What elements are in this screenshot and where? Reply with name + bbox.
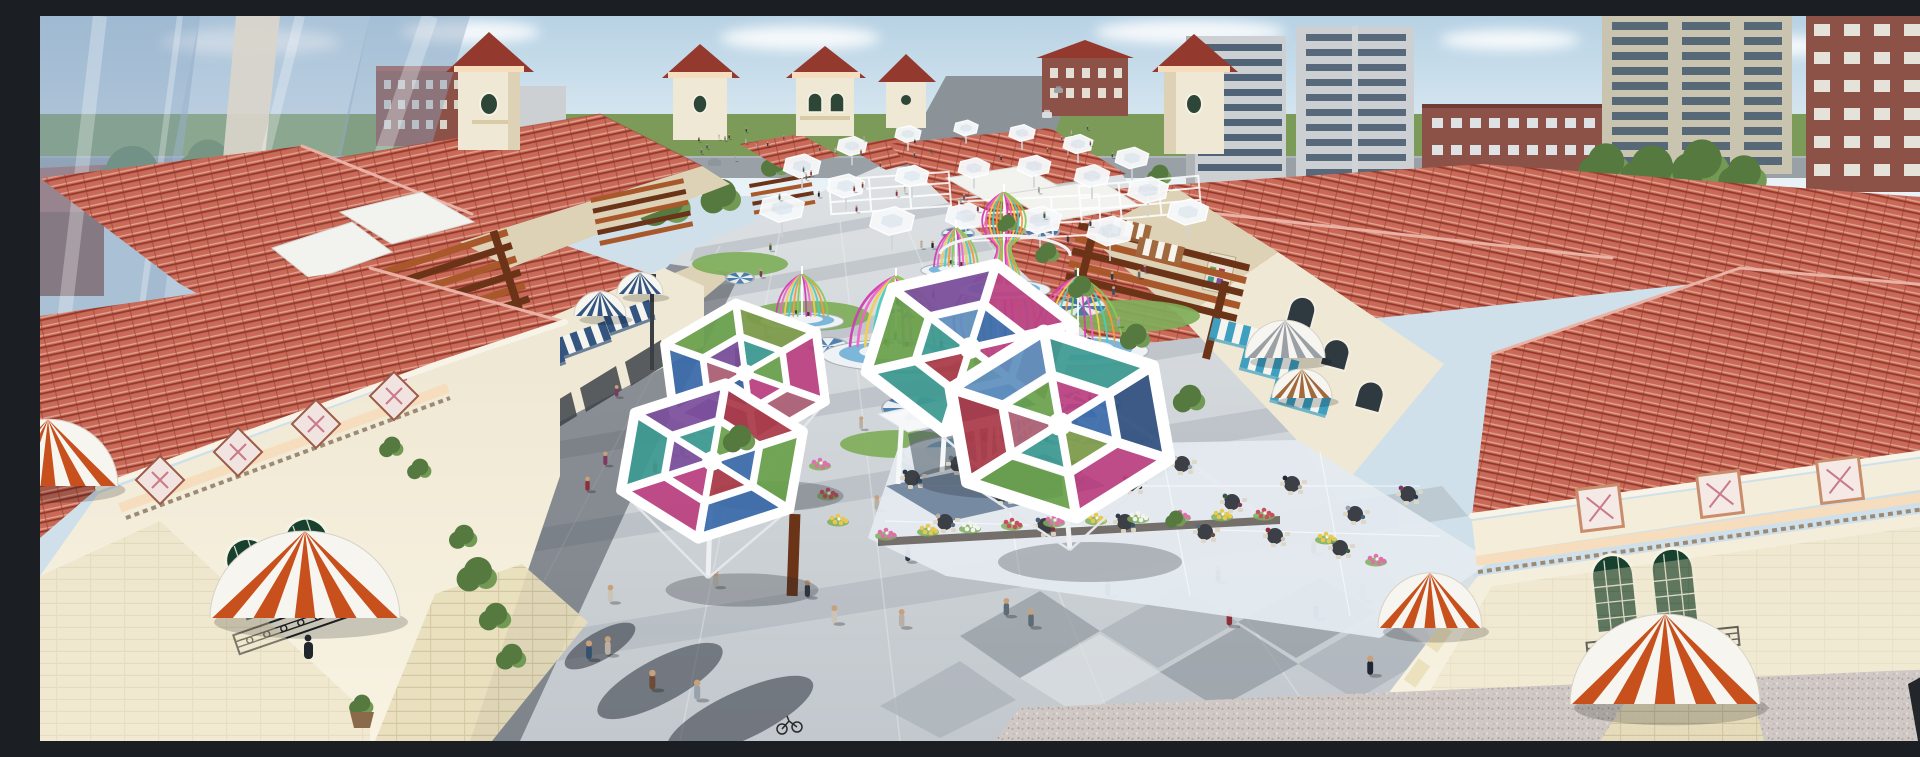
plaza-render (40, 16, 1920, 741)
brick-tower-right (1806, 16, 1920, 192)
white-tower-b (1296, 26, 1414, 188)
render-viewport (40, 16, 1920, 741)
planter-pot (350, 712, 374, 728)
pavement-medallion (726, 272, 754, 284)
